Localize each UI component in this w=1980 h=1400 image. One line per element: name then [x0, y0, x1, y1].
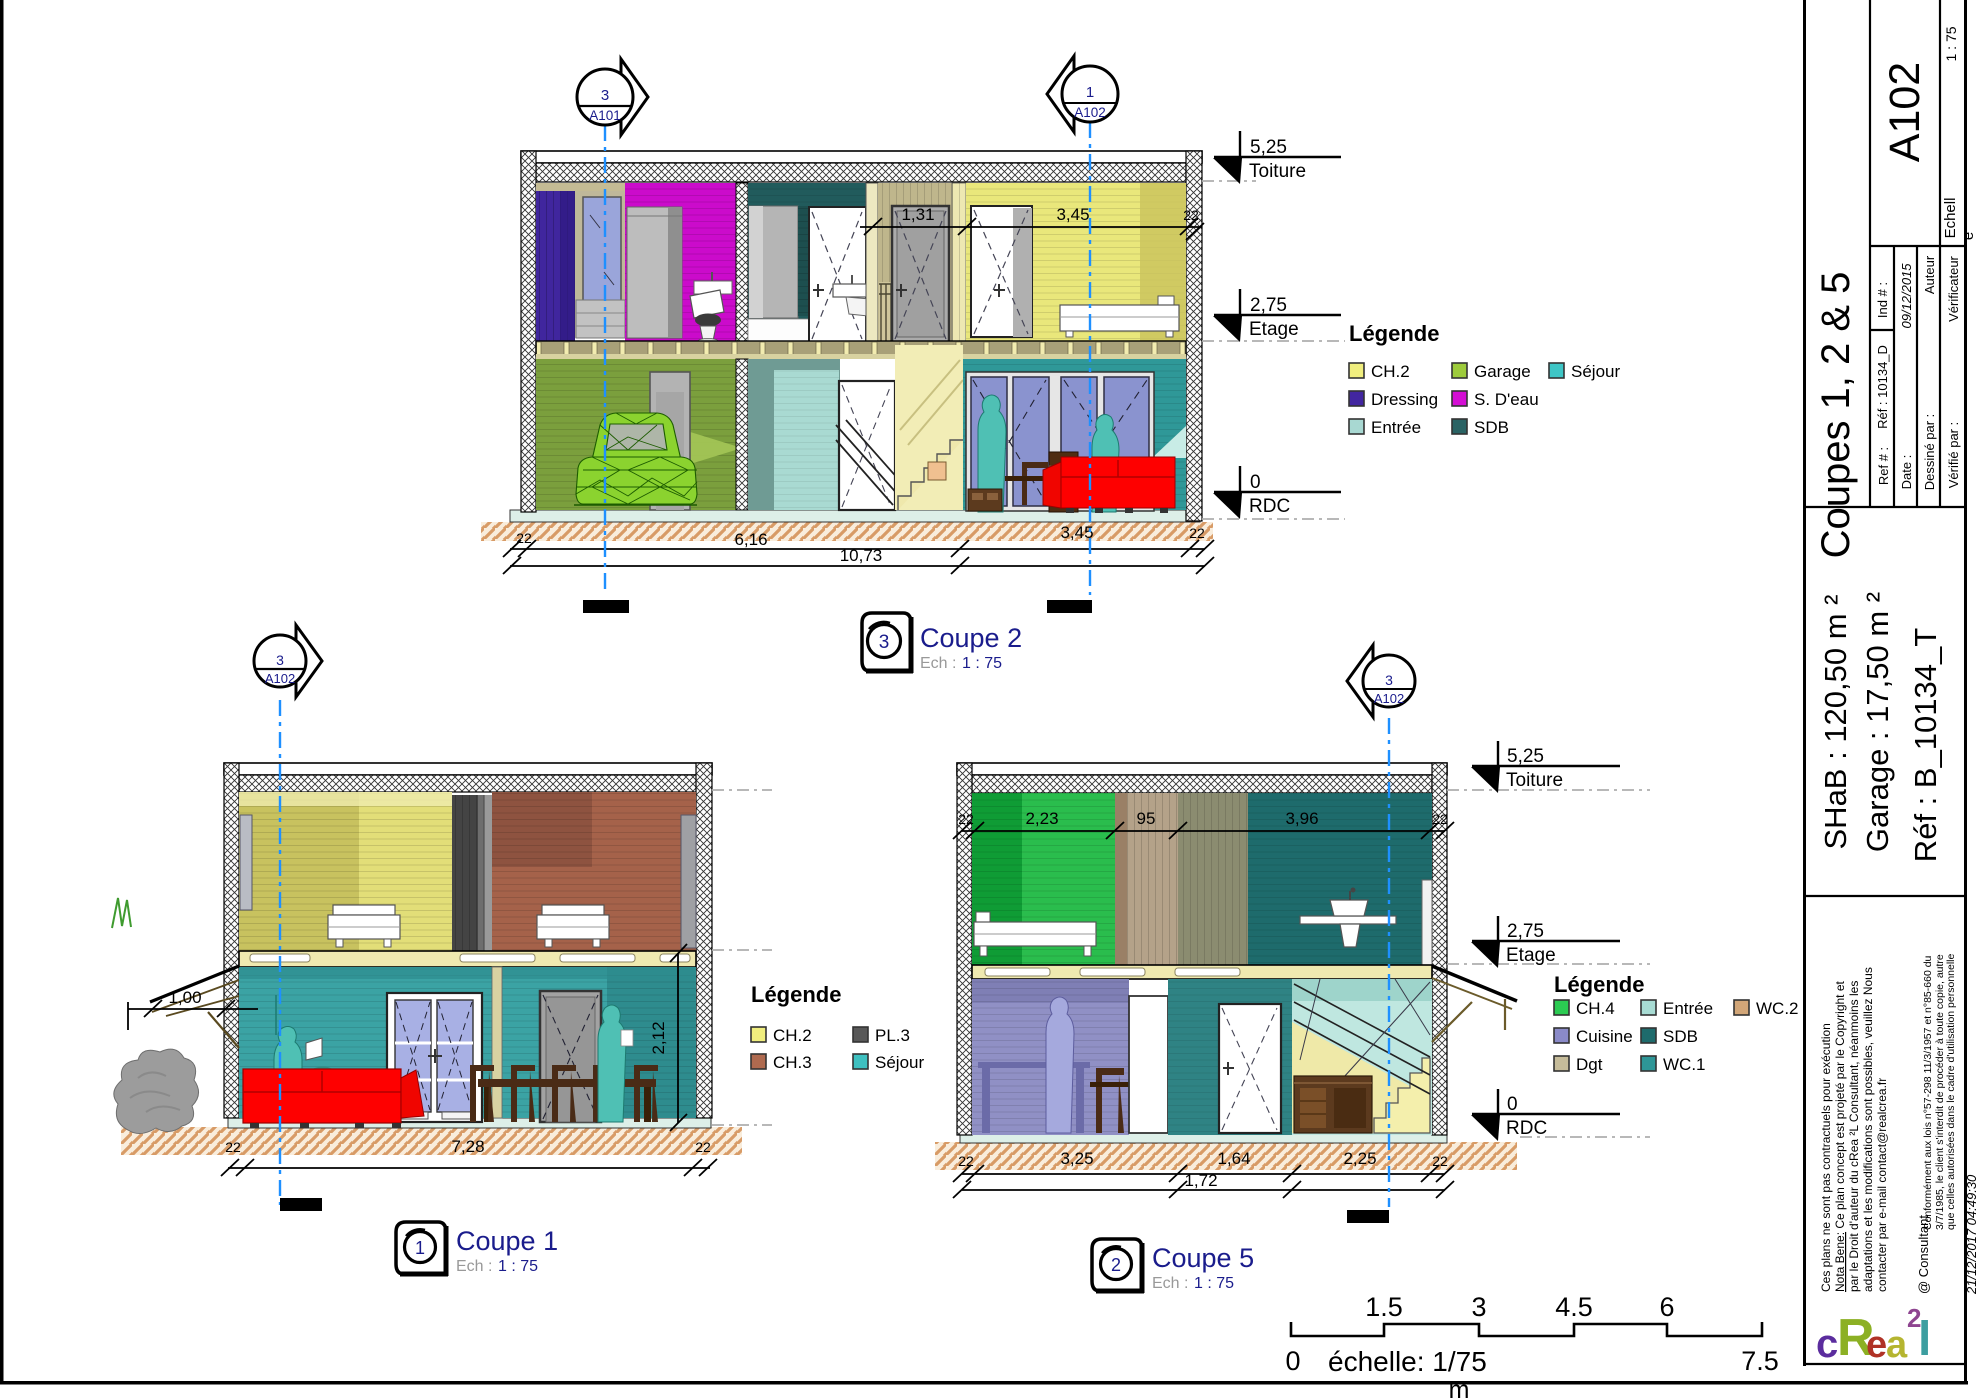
svg-text:95: 95 — [1137, 809, 1156, 828]
svg-text:2,23: 2,23 — [1025, 809, 1058, 828]
svg-text:RDC: RDC — [1506, 1118, 1547, 1139]
svg-text:22: 22 — [958, 811, 974, 827]
svg-text:1 : 75: 1 : 75 — [962, 655, 1002, 672]
svg-text:Légende: Légende — [751, 982, 841, 1007]
svg-text:22: 22 — [1432, 1153, 1448, 1169]
svg-text:adaptations et les modificatio: adaptations et les modifications sont po… — [1861, 967, 1875, 1292]
svg-text:S. D'eau: S. D'eau — [1474, 390, 1539, 409]
svg-text:2,75: 2,75 — [1507, 921, 1544, 942]
svg-text:2,75: 2,75 — [1250, 295, 1287, 316]
svg-text:Dressing: Dressing — [1371, 390, 1438, 409]
svg-text:3,45: 3,45 — [1056, 205, 1089, 224]
svg-text:Ind # :: Ind # : — [1875, 282, 1890, 318]
svg-text:Conformément aux lois n°57-298: Conformément aux lois n°57-298 11/3/1957… — [1922, 955, 1934, 1230]
svg-text:Coupe 1: Coupe 1 — [456, 1226, 558, 1256]
svg-text:5,25: 5,25 — [1250, 137, 1287, 158]
svg-text:3: 3 — [879, 632, 890, 653]
svg-text:3: 3 — [276, 652, 284, 668]
svg-text:Entrée: Entrée — [1371, 418, 1421, 437]
svg-text:1,31: 1,31 — [901, 205, 934, 224]
svg-text:1: 1 — [415, 1238, 425, 1258]
svg-text:contacter par e-mail contact@r: contacter par e-mail contact@realcrea.fr — [1875, 1078, 1889, 1292]
svg-text:7.5: 7.5 — [1741, 1346, 1779, 1376]
svg-text:CH.2: CH.2 — [1371, 362, 1410, 381]
svg-text:WC.2: WC.2 — [1756, 999, 1799, 1018]
svg-text:Séjour: Séjour — [1571, 362, 1620, 381]
svg-text:Entrée: Entrée — [1663, 999, 1713, 1018]
svg-text:par le Droit d'auteur du cRea: par le Droit d'auteur du cRea ²L Consult… — [1847, 981, 1861, 1292]
svg-text:WC.1: WC.1 — [1663, 1055, 1706, 1074]
svg-text:Coupe 5: Coupe 5 — [1152, 1243, 1254, 1273]
svg-text:Légende: Légende — [1349, 321, 1439, 346]
svg-text:3,45: 3,45 — [1060, 523, 1093, 542]
svg-text:m: m — [1449, 1376, 1470, 1400]
svg-text:Ref # :: Ref # : — [1876, 447, 1891, 485]
svg-text:Toiture: Toiture — [1506, 770, 1563, 791]
svg-text:22: 22 — [958, 1153, 974, 1169]
svg-text:3: 3 — [1471, 1292, 1486, 1322]
svg-text:Ces plans ne sont pas contract: Ces plans ne sont pas contractuels pour … — [1819, 1023, 1833, 1292]
svg-text:2,12: 2,12 — [649, 1021, 668, 1054]
svg-text:1,72: 1,72 — [1184, 1171, 1217, 1190]
svg-text:Auteur: Auteur — [1922, 255, 1937, 294]
svg-text:A102: A102 — [1374, 691, 1404, 706]
svg-text:Nota Bene: Ce plan concept est: Nota Bene: Ce plan concept est projeté p… — [1833, 980, 1847, 1292]
svg-text:2: 2 — [1111, 1255, 1121, 1275]
svg-text:6: 6 — [1659, 1292, 1674, 1322]
svg-text:Dgt: Dgt — [1576, 1055, 1603, 1074]
svg-text:Réf : 10134_D: Réf : 10134_D — [1875, 345, 1890, 429]
svg-text:CH.2: CH.2 — [773, 1026, 812, 1045]
svg-text:1 : 75: 1 : 75 — [498, 1258, 538, 1275]
svg-text:e: e — [1960, 232, 1977, 240]
svg-text:A102: A102 — [265, 671, 295, 686]
svg-text:A102: A102 — [1074, 105, 1106, 120]
svg-text:Ech :: Ech : — [1152, 1275, 1188, 1292]
svg-text:3,96: 3,96 — [1285, 809, 1318, 828]
svg-text:RDC: RDC — [1249, 496, 1290, 517]
svg-text:Cuisine: Cuisine — [1576, 1027, 1633, 1046]
svg-text:6,16: 6,16 — [734, 530, 767, 549]
svg-text:4.5: 4.5 — [1555, 1292, 1593, 1322]
svg-text:Dessiné par :: Dessiné par : — [1922, 414, 1937, 491]
svg-text:10,73: 10,73 — [840, 546, 883, 565]
svg-text:Garage: Garage — [1474, 362, 1531, 381]
svg-text:1: 1 — [1086, 84, 1094, 101]
svg-text:3,25: 3,25 — [1060, 1149, 1093, 1168]
svg-text:Réf : B_10134_T: Réf : B_10134_T — [1908, 628, 1943, 862]
svg-text:SDB: SDB — [1474, 418, 1509, 437]
svg-text:Date :: Date : — [1899, 455, 1914, 490]
svg-text:1,00: 1,00 — [168, 988, 201, 1007]
svg-text:22: 22 — [1183, 207, 1199, 223]
svg-text:échelle: 1/75: échelle: 1/75 — [1328, 1346, 1487, 1377]
svg-text:c: c — [1816, 1322, 1838, 1366]
svg-text:Légende: Légende — [1554, 972, 1644, 997]
svg-text:e: e — [1866, 1324, 1887, 1366]
svg-text:SDB: SDB — [1663, 1027, 1698, 1046]
svg-text:a: a — [1886, 1324, 1908, 1366]
svg-text:SHaB : 120,50 m ²: SHaB : 120,50 m ² — [1818, 594, 1853, 849]
svg-text:@ Consultant: @ Consultant — [1916, 1215, 1931, 1294]
svg-text:7,28: 7,28 — [451, 1137, 484, 1156]
svg-text:Ech :: Ech : — [456, 1258, 492, 1275]
svg-text:que celles autorisées dans le: que celles autorisées dans le cadre d'ut… — [1945, 953, 1957, 1230]
svg-text:Séjour: Séjour — [875, 1053, 924, 1072]
svg-text:A101: A101 — [589, 108, 621, 123]
svg-text:0: 0 — [1285, 1346, 1300, 1376]
svg-text:Etage: Etage — [1506, 945, 1556, 966]
svg-text:1 : 75: 1 : 75 — [1943, 26, 1959, 61]
svg-text:Echell: Echell — [1942, 198, 1959, 239]
svg-text:Vérificateur: Vérificateur — [1946, 255, 1961, 321]
svg-text:Ech :: Ech : — [920, 655, 956, 672]
svg-text:22: 22 — [695, 1139, 711, 1155]
svg-text:22: 22 — [1432, 811, 1448, 827]
svg-text:Coupes 1, 2 & 5: Coupes 1, 2 & 5 — [1814, 272, 1858, 559]
svg-text:5,25: 5,25 — [1507, 746, 1544, 767]
svg-text:Coupe 2: Coupe 2 — [920, 623, 1022, 653]
svg-text:09/12/2015: 09/12/2015 — [1899, 263, 1914, 329]
svg-text:0: 0 — [1507, 1094, 1518, 1115]
svg-text:Vérifié par :: Vérifié par : — [1946, 422, 1961, 488]
svg-text:CH.4: CH.4 — [1576, 999, 1615, 1018]
svg-text:22: 22 — [516, 530, 532, 546]
svg-text:22: 22 — [1189, 525, 1205, 541]
svg-text:1,64: 1,64 — [1217, 1149, 1250, 1168]
svg-text:Etage: Etage — [1249, 319, 1299, 340]
svg-text:3: 3 — [601, 87, 609, 104]
svg-text:0: 0 — [1250, 472, 1261, 493]
svg-text:Toiture: Toiture — [1249, 161, 1306, 182]
svg-text:2,25: 2,25 — [1343, 1149, 1376, 1168]
svg-text:Garage : 17,50 m ²: Garage : 17,50 m ² — [1860, 592, 1895, 852]
svg-text:PL.3: PL.3 — [875, 1026, 910, 1045]
svg-text:1 : 75: 1 : 75 — [1194, 1275, 1234, 1292]
svg-text:1.5: 1.5 — [1365, 1292, 1403, 1322]
svg-text:22: 22 — [225, 1139, 241, 1155]
svg-text:3: 3 — [1385, 672, 1393, 688]
svg-text:21/12/2017 04:49:30: 21/12/2017 04:49:30 — [1964, 1174, 1979, 1295]
svg-text:CH.3: CH.3 — [773, 1053, 812, 1072]
svg-text:l: l — [1918, 1313, 1931, 1366]
svg-text:A102: A102 — [1881, 62, 1929, 162]
